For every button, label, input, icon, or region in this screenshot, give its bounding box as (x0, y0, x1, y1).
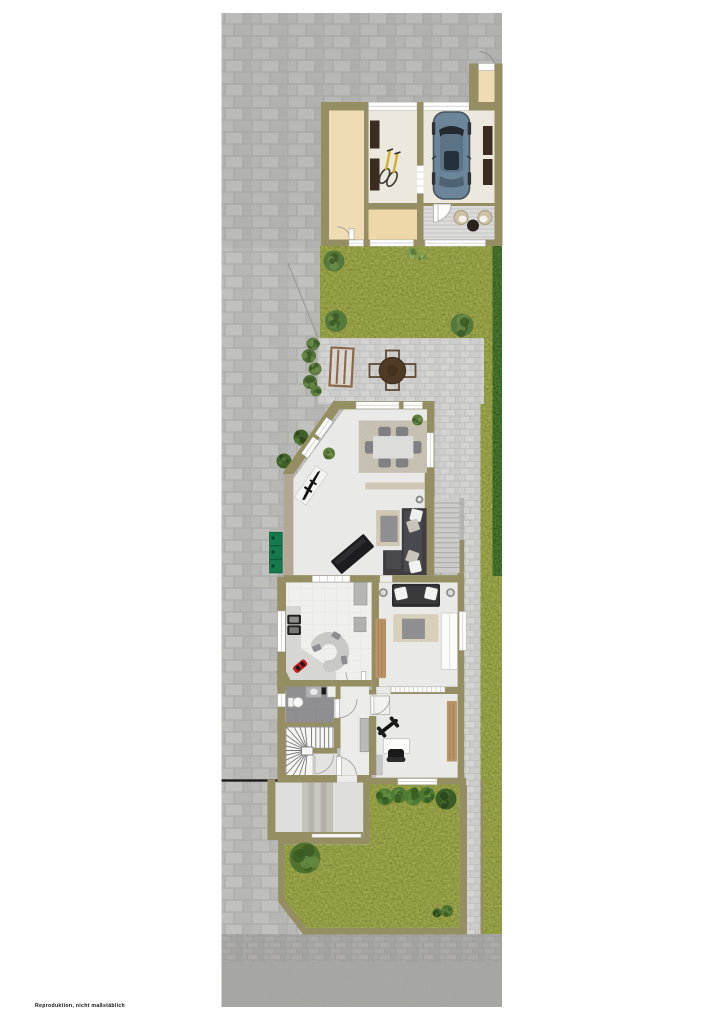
svg-text:Reproduktion, nicht maßstäblic: Reproduktion, nicht maßstäblich (35, 1003, 125, 1009)
